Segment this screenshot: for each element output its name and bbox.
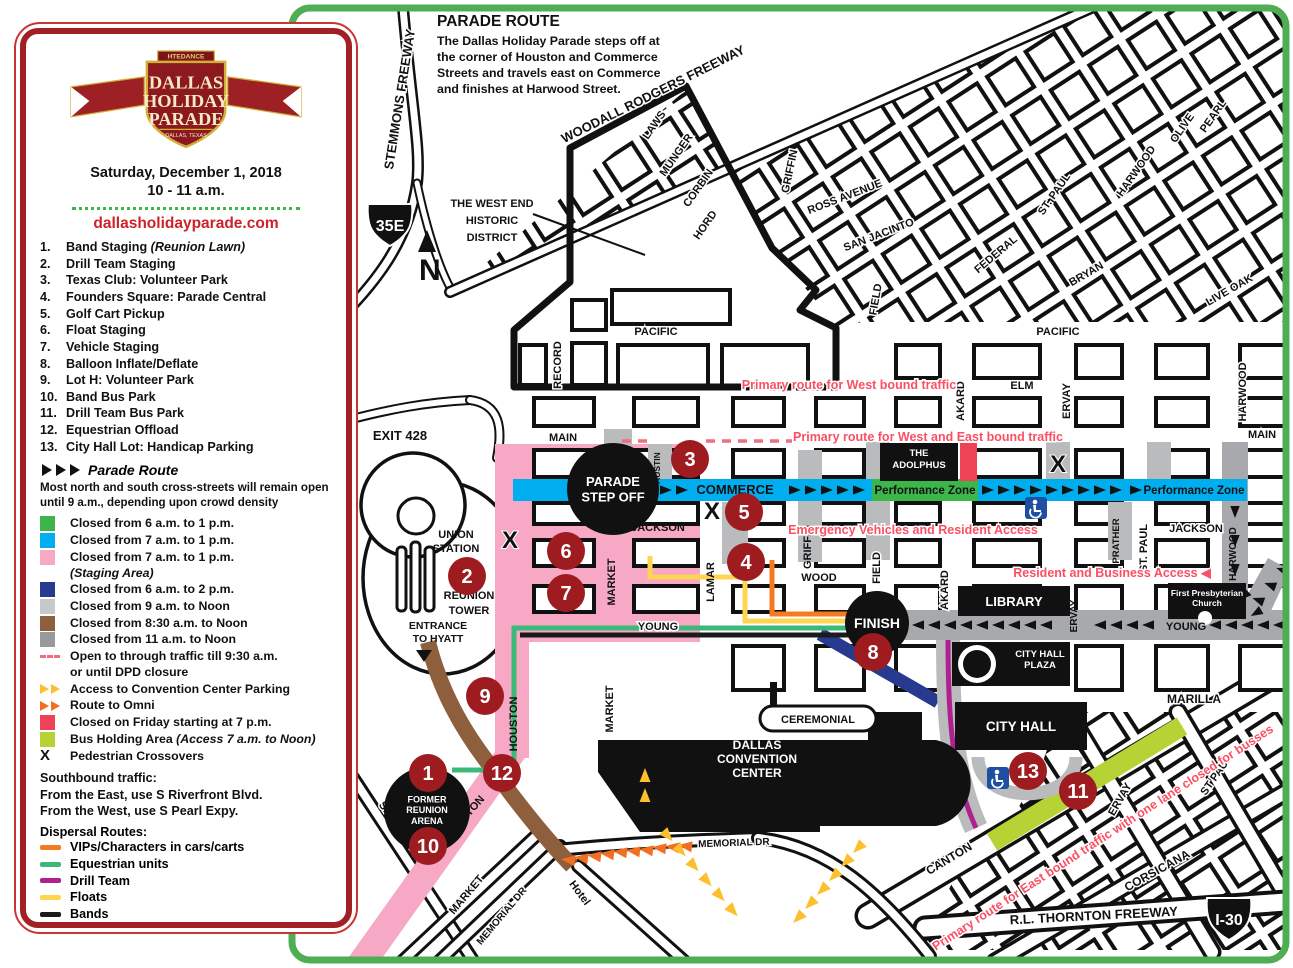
street-label-record: RECORD xyxy=(552,341,564,389)
list-item: 2.Drill Team Staging xyxy=(40,256,332,273)
city-block xyxy=(1156,345,1208,378)
area-label-union: STATION xyxy=(433,543,480,555)
list-item: 11.Drill Team Bus Park xyxy=(40,405,332,422)
dispersal-header: Dispersal Routes: xyxy=(40,825,332,839)
city-block xyxy=(534,398,594,426)
street-label-young: YOUNG xyxy=(638,621,678,633)
city-block xyxy=(974,345,1040,378)
street-label-houston: HOUSTON xyxy=(508,697,520,752)
pedestrian-crossover-x: X xyxy=(704,498,720,525)
area-label-dallas: DALLAS xyxy=(733,738,782,752)
legend-card: HTEDANCE PRESENTS DALLAS HOLIDAY PARADE … xyxy=(14,22,358,934)
shield-label: I-30 xyxy=(1215,912,1243,929)
color-swatch-icon xyxy=(40,632,70,647)
list-item: 1.Band Staging (Reunion Lawn) xyxy=(40,239,332,256)
area-label-dallas: CONVENTION xyxy=(717,752,797,766)
website-link[interactable]: dallasholidayparade.com xyxy=(40,215,332,233)
city-block xyxy=(974,450,1040,477)
parade-logo: HTEDANCE PRESENTS DALLAS HOLIDAY PARADE … xyxy=(61,40,311,162)
marker-number: 6 xyxy=(560,541,571,563)
area-label-city-hall: CITY HALL xyxy=(986,719,1056,734)
city-block xyxy=(1240,646,1286,690)
list-item: 12.Equestrian Offload xyxy=(40,422,332,439)
area-label-the-west-end: HISTORIC xyxy=(466,215,518,227)
marker-number: 3 xyxy=(684,449,695,471)
route-line-icon xyxy=(40,862,61,867)
closure-item: Closed from 7 a.m. to 1 p.m. xyxy=(40,533,332,549)
city-block xyxy=(634,540,698,566)
street-label-performance-zone: Performance Zone xyxy=(875,485,976,497)
street-label-akard: AKARD xyxy=(939,570,951,610)
route-arrow-icon xyxy=(56,464,66,476)
svg-text:HOLIDAY: HOLIDAY xyxy=(143,91,229,111)
list-item: 13.City Hall Lot: Handicap Parking xyxy=(40,439,332,456)
street-label-field: FIELD xyxy=(871,552,883,584)
union-station-building xyxy=(397,498,434,612)
route-arrow-icon xyxy=(70,464,80,476)
svg-text:DALLAS, TEXAS: DALLAS, TEXAS xyxy=(165,133,207,139)
street-label-market: MARKET xyxy=(604,685,616,732)
city-block xyxy=(896,503,940,524)
marker-label: REUNION xyxy=(406,805,448,815)
area-label-the: THE xyxy=(910,448,929,459)
street-label-harwood: HARWOOD xyxy=(1237,362,1249,421)
dispersal-item: Bands xyxy=(40,906,332,923)
closure-item: Open to through traffic till 9:30 a.m.or… xyxy=(40,649,332,680)
city-block xyxy=(1076,398,1122,426)
closure-item: Access to Convention Center Parking xyxy=(40,682,332,698)
traffic-note: Primary route for West bound traffic xyxy=(742,378,956,392)
svg-text:DALLAS: DALLAS xyxy=(149,73,223,93)
arrows-icon xyxy=(40,682,70,697)
color-swatch-icon xyxy=(40,533,70,548)
marker-label: ARENA xyxy=(411,816,444,826)
marker-number: 10 xyxy=(417,836,439,858)
friday-closure xyxy=(960,443,977,481)
area-label-entrance: ENTRANCE xyxy=(409,620,467,632)
street-label-elm: ELM xyxy=(1010,380,1033,392)
street-label-performance-zone: Performance Zone xyxy=(1144,485,1245,497)
marker-label: FINISH xyxy=(854,615,900,631)
street-label-pacific: PACIFIC xyxy=(634,326,677,338)
city-block xyxy=(1076,450,1122,477)
city-block xyxy=(1156,540,1208,566)
route-line-icon xyxy=(40,878,61,883)
color-swatch-icon xyxy=(40,582,70,597)
street-label-st-paul: ST. PAUL xyxy=(1138,524,1150,572)
numbered-locations-list: 1.Band Staging (Reunion Lawn)2.Drill Tea… xyxy=(40,239,332,455)
route-line-icon xyxy=(40,845,61,850)
city-block xyxy=(816,503,864,524)
arrows-icon xyxy=(40,698,70,713)
handicap-parking-icon xyxy=(1025,497,1047,519)
area-label-the-west-end: THE WEST END xyxy=(450,198,533,210)
area-label-ceremonial: CEREMONIAL xyxy=(781,714,855,726)
street-label-wood: WOOD xyxy=(801,572,836,584)
street-label-harwood: HARWOOD xyxy=(1228,527,1239,581)
city-block xyxy=(1076,586,1122,612)
city-block xyxy=(974,398,1040,426)
city-block xyxy=(816,398,864,426)
color-swatch-icon xyxy=(40,649,70,664)
area-label-the: ADOLPHUS xyxy=(892,460,945,471)
street-label-jackson: JACKSON xyxy=(1169,523,1223,535)
dispersal-legend: VIPs/Characters in cars/cartsEquestrian … xyxy=(40,839,332,922)
marker-number: 1 xyxy=(422,763,433,785)
city-block xyxy=(634,586,698,612)
street-label-prather: PRATHER xyxy=(1111,518,1122,563)
city-block xyxy=(1156,503,1208,524)
dispersal-item: VIPs/Characters in cars/carts xyxy=(40,839,332,856)
color-swatch-icon xyxy=(40,715,70,730)
street-label-exit-428: EXIT 428 xyxy=(373,428,427,443)
area-label-library: LIBRARY xyxy=(985,594,1043,609)
city-block xyxy=(733,586,784,612)
map-description: Streets and travels east on Commerce xyxy=(437,66,661,80)
closure-item: XPedestrian Crossovers xyxy=(40,749,332,765)
marker-number: 8 xyxy=(867,642,878,664)
marker-number: 4 xyxy=(740,552,752,574)
list-item: 9.Lot H: Volunteer Park xyxy=(40,372,332,389)
marker-number: 7 xyxy=(560,583,571,605)
street-label-ervay: ERVAY xyxy=(1069,599,1080,632)
route-arrow-icon xyxy=(42,464,52,476)
city-block xyxy=(733,450,784,477)
map-description: and finishes at Harwood Street. xyxy=(437,82,621,96)
marker-number: 9 xyxy=(479,686,490,708)
list-item: 8.Balloon Inflate/Deflate xyxy=(40,356,332,373)
street-label-marilla: MARILLA xyxy=(1167,692,1221,706)
city-block xyxy=(896,540,940,566)
list-item: 7.Vehicle Staging xyxy=(40,339,332,356)
closure-item: Closed from 11 a.m. to Noon xyxy=(40,632,332,648)
closure-item: Bus Holding Area (Access 7 a.m. to Noon) xyxy=(40,732,332,748)
city-block xyxy=(1076,345,1122,378)
marker-label: STEP OFF xyxy=(581,489,644,504)
area-label-dallas: CENTER xyxy=(732,766,782,780)
color-swatch-icon xyxy=(40,599,70,614)
list-item: 3.Texas Club: Volunteer Park xyxy=(40,272,332,289)
area-label-city-hall: PLAZA xyxy=(1024,660,1056,671)
marker-number: 11 xyxy=(1067,781,1088,803)
pedestrian-x-icon: X xyxy=(40,749,70,764)
southbound-traffic: Southbound traffic: From the East, use S… xyxy=(40,770,332,819)
route-line-icon xyxy=(40,895,61,900)
marker-number: 12 xyxy=(491,763,513,785)
traffic-note: Resident and Business Access ◀ xyxy=(1013,566,1212,580)
dispersal-item: Drill Team xyxy=(40,873,332,890)
map-description: The Dallas Holiday Parade steps off at xyxy=(437,34,660,48)
area-label-the-west-end: DISTRICT xyxy=(467,232,518,244)
color-swatch-icon xyxy=(40,616,70,631)
area-label-city-hall: CITY HALL xyxy=(1015,649,1065,660)
traffic-note: Primary route for West and East bound tr… xyxy=(793,430,1063,444)
list-item: 6.Float Staging xyxy=(40,322,332,339)
dotted-divider xyxy=(72,207,300,210)
street-label-commerce: COMMERCE xyxy=(696,482,774,497)
map-description: the corner of Houston and Commerce xyxy=(437,50,658,64)
marker-number: 13 xyxy=(1017,761,1039,783)
street-label-pacific: PACIFIC xyxy=(1036,326,1079,338)
closure-item: Closed from 9 a.m. to Noon xyxy=(40,599,332,615)
dispersal-item: Floats xyxy=(40,889,332,906)
color-swatch-icon xyxy=(40,732,70,747)
cross-streets-note: Most north and south cross-streets will … xyxy=(40,480,332,510)
closure-item: Route to Omni xyxy=(40,698,332,714)
city-block xyxy=(1156,398,1208,426)
street-label-main: MAIN xyxy=(1248,429,1276,441)
city-block xyxy=(896,345,940,378)
closure-item: Closed from 7 a.m. to 1 p.m.(Staging Are… xyxy=(40,550,332,581)
area-label-first-presbyterian: First Presbyterian xyxy=(1171,588,1243,598)
pedestrian-crossover-x: X xyxy=(502,527,518,554)
area-label-union: UNION xyxy=(438,529,474,541)
marker-number: 2 xyxy=(461,566,472,588)
shield-label: 35E xyxy=(376,218,405,235)
map-title: PARADE ROUTE xyxy=(437,13,560,30)
city-block xyxy=(1076,646,1122,690)
marker-label: FORMER xyxy=(408,794,447,804)
city-block xyxy=(896,398,940,426)
closure-item: Closed on Friday starting at 7 p.m. xyxy=(40,715,332,731)
color-swatch-icon xyxy=(40,516,70,531)
street-label-akard: AKARD xyxy=(955,381,967,421)
area-label-first-presbyterian: Church xyxy=(1192,598,1222,608)
closure-legend: Closed from 6 a.m. to 1 p.m.Closed from … xyxy=(40,516,332,764)
city-block xyxy=(816,450,864,477)
dispersal-item: Equestrian units xyxy=(40,856,332,873)
parade-map-page: STEMMONS FREEWAYWOODALL RODGERS FREEWAYL… xyxy=(0,0,1293,968)
closure-item: Closed from 6 a.m. to 1 p.m. xyxy=(40,516,332,532)
event-date: Saturday, December 1, 2018 10 - 11 a.m. xyxy=(40,164,332,200)
street-label-market: MARKET xyxy=(606,558,618,605)
closure-item: Closed from 8:30 a.m. to Noon xyxy=(40,616,332,632)
list-item: 4.Founders Square: Parade Central xyxy=(40,289,332,306)
street-label-ervay: ERVAY xyxy=(1061,382,1073,419)
compass-label: N xyxy=(419,254,441,287)
marker-label: PARADE xyxy=(586,474,640,489)
city-block xyxy=(1156,646,1208,690)
area-label-reunion: TOWER xyxy=(449,605,490,617)
traffic-note: Emergency Vehicles and Resident Access xyxy=(788,523,1038,537)
pedestrian-crossover-x: X xyxy=(1050,451,1066,478)
handicap-parking-icon xyxy=(987,767,1009,789)
street-label-young: YOUNG xyxy=(1166,621,1206,633)
street-label-lamar: LAMAR xyxy=(705,562,717,602)
color-swatch-icon xyxy=(40,550,70,565)
parade-route-header: Parade Route xyxy=(42,462,332,478)
marker-number: 5 xyxy=(738,502,749,524)
svg-text:PARADE: PARADE xyxy=(148,109,223,129)
area-label-entrance: TO HYATT xyxy=(413,633,464,645)
list-item: 5.Golf Cart Pickup xyxy=(40,306,332,323)
route-line-icon xyxy=(40,912,61,917)
city-block xyxy=(816,540,864,566)
street-label-main: MAIN xyxy=(549,432,577,444)
closure-item: Closed from 6 a.m. to 2 p.m. xyxy=(40,582,332,598)
city-block xyxy=(974,540,1040,566)
city-block xyxy=(634,398,698,426)
city-block xyxy=(733,398,784,426)
list-item: 10.Band Bus Park xyxy=(40,389,332,406)
